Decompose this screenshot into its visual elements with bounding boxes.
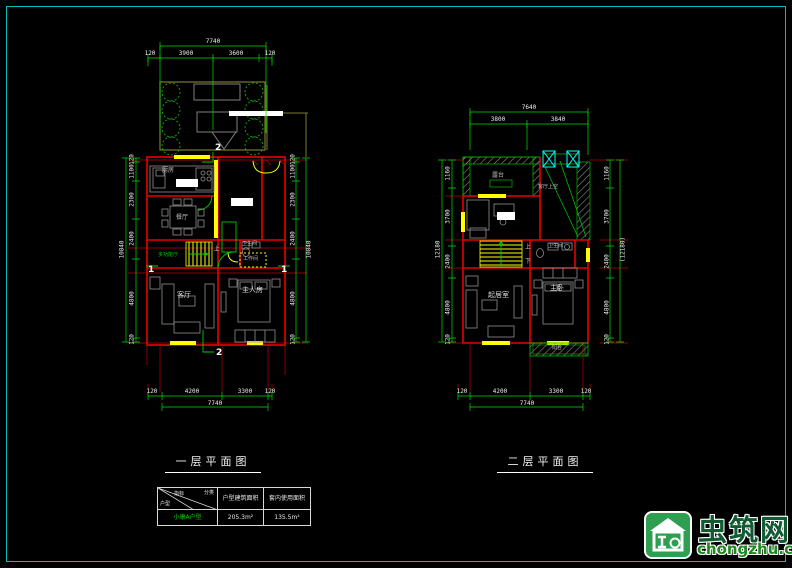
room-master-1f: 主人房	[242, 287, 263, 294]
p2-dim-left-3: 4800	[445, 293, 452, 323]
room-kitchen: 厨房	[162, 167, 174, 174]
stair-up-label-1f: 上	[214, 246, 220, 253]
table-header-usable-area: 套内使用面积	[264, 488, 310, 510]
p1-dim-left-total: 10840	[119, 235, 126, 265]
p1-dim-bot-1: 4200	[177, 388, 207, 395]
p1-dim-right-4: 4800	[290, 284, 297, 314]
plan2-title: 二层平面图	[497, 453, 593, 473]
room-bath-2f: 卫生间	[548, 243, 563, 250]
p2-dim-left-total: 12180	[435, 235, 442, 265]
p1-dim-top-0: 120	[135, 50, 165, 57]
p2-dim-right-0: 1160	[604, 159, 611, 189]
plan1-label-highlight-kitchen	[176, 179, 198, 187]
p1-dim-bot-total: 7740	[200, 400, 230, 407]
p2-dim-top-total: 7640	[514, 104, 544, 111]
p1-dim-left-3: 2400	[129, 224, 136, 254]
table-unit-name: 小康A户型	[158, 510, 218, 525]
p1-dim-bot-3: 120	[255, 388, 285, 395]
p1-dim-right-total: 10840	[306, 235, 313, 265]
chongzhu-house-icon	[644, 511, 692, 559]
floorplan-linework	[0, 0, 792, 568]
room-balcony: 阳台	[552, 345, 562, 352]
plan2-label-highlight-study	[497, 212, 515, 220]
corner-label-category: 分类	[204, 490, 214, 497]
corner-label-unit: 户型	[160, 501, 170, 508]
cad-canvas: 7740 120 3900 3600 120 120 4200 3300 120…	[0, 0, 792, 568]
room-living: 客厅	[177, 292, 191, 299]
plan2-hatched-wall	[577, 162, 590, 240]
p1-dim-left-1: 1100	[129, 157, 136, 187]
p1-dim-top-total: 7740	[198, 38, 228, 45]
p1-dim-left-5: 120	[129, 325, 136, 355]
room-family: 起居室	[488, 292, 509, 299]
p1-dim-bot-0: 120	[137, 388, 167, 395]
p2-dim-bot-2: 3300	[541, 388, 571, 395]
p1-dim-top-1: 3900	[171, 50, 201, 57]
p1-dim-top-3: 120	[255, 50, 285, 57]
p2-dim-bot-3: 120	[571, 388, 601, 395]
p2-dim-left-0: 1160	[445, 159, 452, 189]
plan1-label-highlight-hall	[231, 198, 253, 206]
garden-table-highlight	[229, 111, 283, 116]
p1-dim-left-2: 2300	[129, 185, 136, 215]
p2-dim-right-4: 120	[604, 325, 611, 355]
p2-dim-top-1: 3840	[543, 116, 573, 123]
section-marker-2-top: 2	[215, 144, 221, 153]
p1-dim-right-1: 1100	[290, 157, 297, 187]
table-usable-area-value: 135.5m²	[264, 510, 310, 525]
p2-dim-left-4: 120	[445, 325, 452, 355]
area-summary-table: 分类 指标 户型 户型建筑面积 套内使用面积 小康A户型 205.3m² 135…	[157, 487, 311, 526]
corner-label-index: 指标	[174, 491, 184, 498]
section-marker-2-bottom: 2	[216, 349, 222, 358]
p2-dim-right-2: 2400	[604, 247, 611, 277]
table-built-area-value: 205.3m²	[218, 510, 264, 525]
room-void: 客厅上空	[538, 184, 558, 191]
p2-dim-left-2: 2400	[445, 247, 452, 277]
p1-dim-right-5: 120	[290, 325, 297, 355]
table-corner-cell: 分类 指标 户型	[158, 488, 218, 510]
p2-dim-bot-0: 120	[447, 388, 477, 395]
plan1-garden	[160, 82, 308, 157]
p2-dim-bot-total: 7740	[512, 400, 542, 407]
room-master-2f: 主卧	[550, 285, 564, 292]
room-terrace: 露台	[492, 172, 504, 179]
room-dining: 餐厅	[176, 214, 188, 221]
table-header-built-area: 户型建筑面积	[218, 488, 264, 510]
plan2-windows-and-stairs	[461, 194, 590, 345]
room-bath-1f: 卫生间	[242, 241, 257, 248]
plan1-title: 一层平面图	[165, 453, 261, 473]
chongzhu-watermark: 虫筑网 chongzhu.cn	[644, 511, 790, 563]
p2-dim-right-total: (12180)	[620, 235, 627, 265]
room-multi: 多功能厅	[158, 252, 178, 259]
p1-dim-right-2: 2300	[290, 185, 297, 215]
logo-domain-text: chongzhu.cn	[697, 540, 792, 558]
stair-up-label-2f: 上	[525, 244, 531, 251]
section-marker-1-right: 1	[281, 266, 287, 275]
p1-dim-left-4: 4800	[129, 284, 136, 314]
p2-dim-right-3: 4800	[604, 293, 611, 323]
section-marker-1-left: 1	[148, 266, 154, 275]
p2-dim-right-1: 3700	[604, 202, 611, 232]
p2-dim-top-0: 3800	[483, 116, 513, 123]
room-work: 工作间	[243, 256, 258, 263]
p1-dim-top-2: 3600	[221, 50, 251, 57]
p1-dim-right-3: 2400	[290, 224, 297, 254]
p2-dim-bot-1: 4200	[485, 388, 515, 395]
stair-down-label-2f: 下	[525, 258, 531, 265]
p2-dim-left-1: 3700	[445, 202, 452, 232]
